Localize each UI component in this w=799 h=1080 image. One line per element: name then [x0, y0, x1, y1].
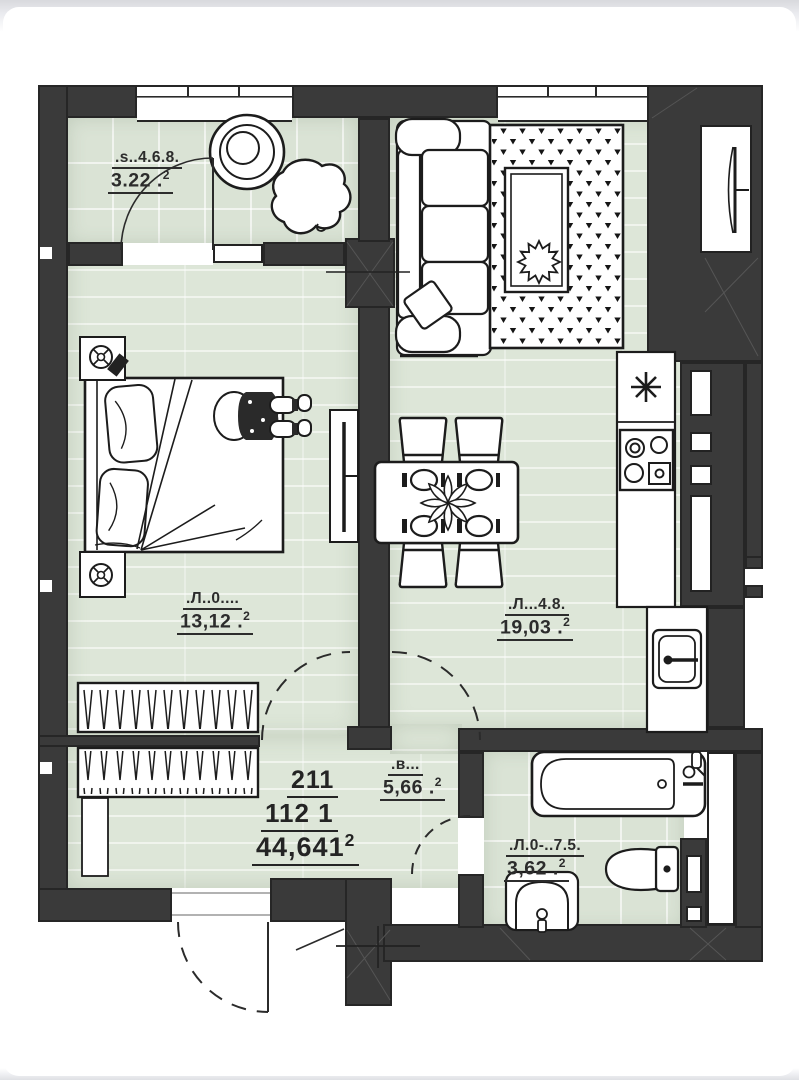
hallway-area: 5,66 .2: [380, 776, 445, 801]
bedroom-label: .Л..0.... 13,12 .2: [183, 591, 253, 635]
kitchen-living-area: 19,03 .2: [497, 616, 573, 641]
living-tv-icon: [729, 147, 750, 233]
coffee-table: [505, 168, 568, 292]
lamp-icon-bottom: [90, 564, 112, 586]
kitchen-living-name: .Л...4.8.: [505, 597, 569, 616]
bedroom-area: 13,12 .2: [177, 610, 253, 635]
sofa: [396, 119, 491, 356]
apartment-total-area: 44,6412: [252, 830, 359, 866]
apartment-number: 211: [287, 766, 338, 798]
wardrobe-hallway: [78, 748, 258, 797]
washing-machine-icon: [210, 115, 284, 189]
floor-plan: .s..4.6.8. 3.22 .2 .Л..0.... 13,12 .2 .Л…: [0, 0, 799, 1080]
bathroom-label: .Л.0-..7.5. 3,62 .2: [506, 838, 584, 882]
plant-icon: [272, 160, 351, 233]
bathtub-icon: [532, 752, 705, 816]
balcony-label: .s..4.6.8. 3.22 .2: [112, 150, 182, 194]
kitchen-door-arc: [392, 652, 480, 740]
person-on-bed: [214, 392, 311, 440]
dining-set: [375, 418, 518, 587]
bedroom-tv-icon: [330, 410, 358, 542]
kitchen-living-label: .Л...4.8. 19,03 .2: [505, 597, 573, 641]
wardrobe-bedroom: [78, 683, 258, 732]
bedroom-door-arc: [262, 652, 350, 740]
bedroom-name: .Л..0....: [183, 591, 242, 610]
shelf: [82, 798, 108, 876]
lamp-icon-top: [90, 346, 112, 368]
entrance-door-arc: [178, 922, 268, 1012]
flower-centerpiece-icon: [421, 476, 475, 530]
kitchen-sink-icon: [653, 630, 701, 688]
bathroom-door-arc: [412, 816, 470, 874]
apartment-code: 112 1: [261, 798, 338, 832]
balcony-name: .s..4.6.8.: [112, 150, 182, 169]
hallway-name: .в...: [388, 757, 423, 776]
hallway-label: .в... 5,66 .2: [388, 757, 445, 801]
toilet-icon: [606, 847, 678, 891]
paper-bottom: [3, 1058, 796, 1076]
bathroom-area: 3,62 .2: [504, 857, 569, 882]
stove-icon: [620, 430, 673, 490]
balcony-area: 3.22 .2: [108, 169, 173, 194]
bathroom-name: .Л.0-..7.5.: [506, 838, 584, 857]
